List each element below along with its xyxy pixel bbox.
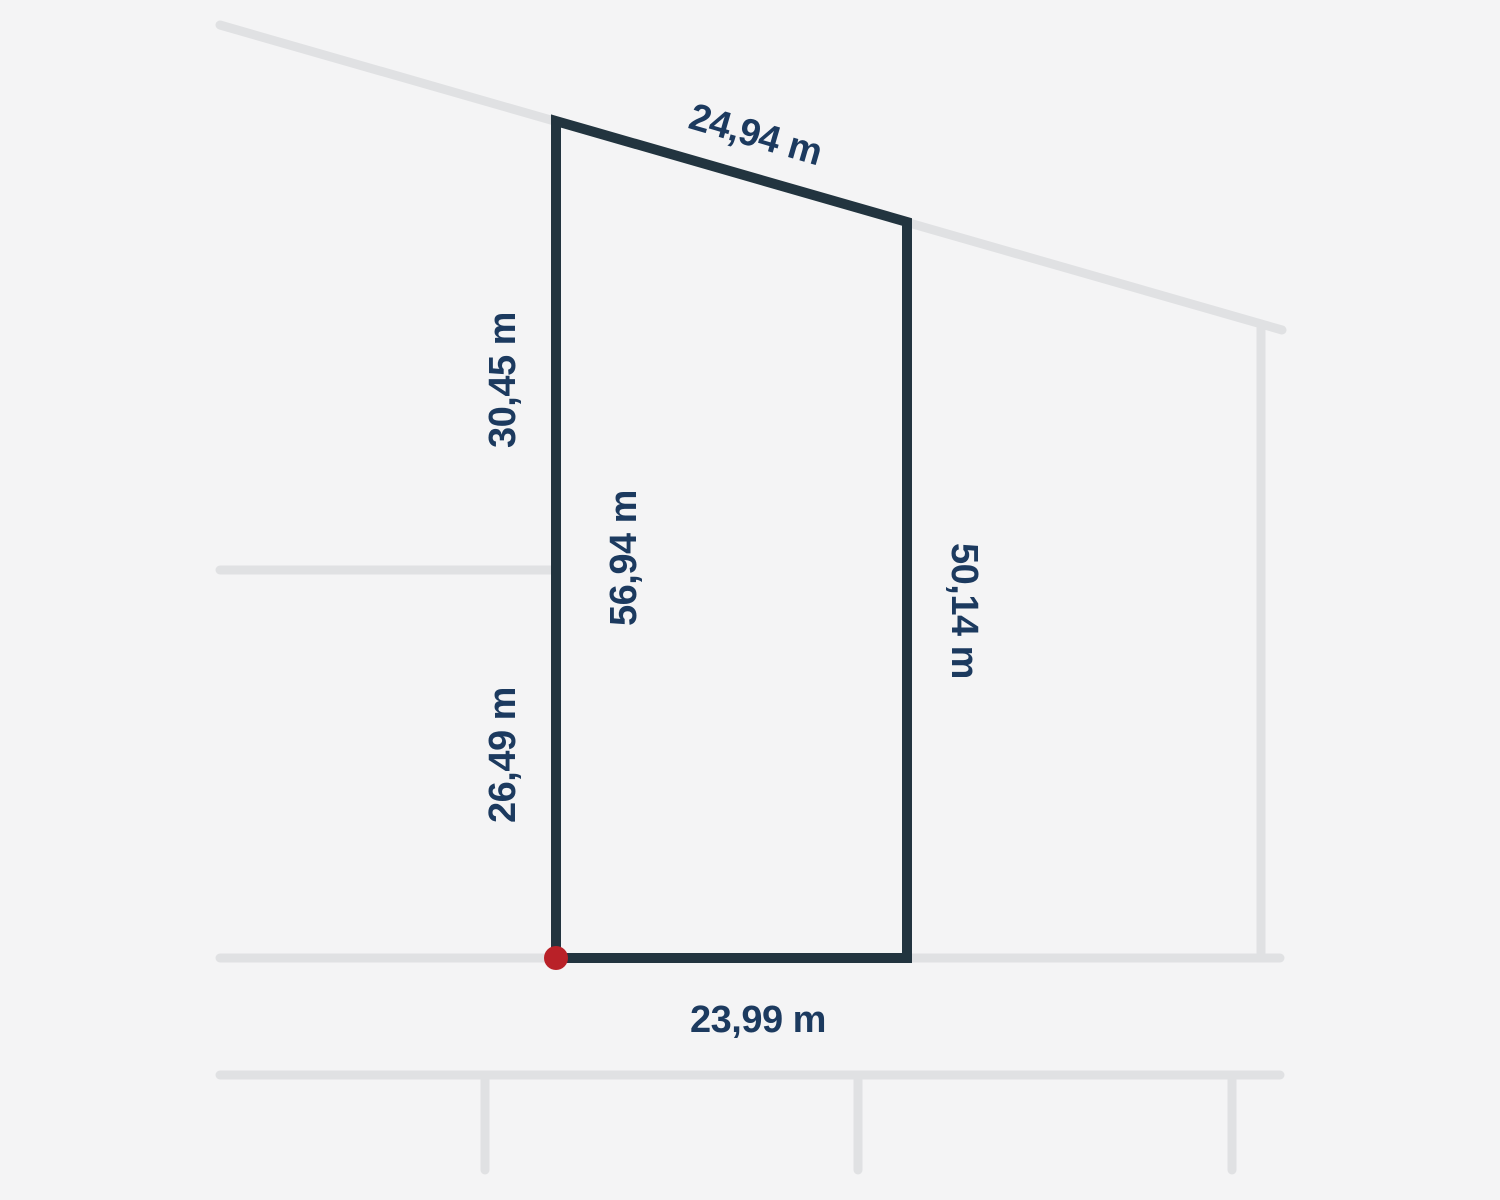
dimension-right: 50,14 m	[943, 543, 985, 679]
dimension-left-total: 56,94 m	[603, 490, 645, 626]
plot-diagram-canvas: 24,94 m 30,45 m 56,94 m 26,49 m 50,14 m …	[0, 0, 1500, 1200]
dimension-left-lower: 26,49 m	[482, 687, 524, 823]
corner-marker-dot	[544, 946, 568, 970]
dimension-left-upper: 30,45 m	[482, 312, 524, 448]
dimension-bottom: 23,99 m	[690, 999, 826, 1041]
plot-diagram: 24,94 m 30,45 m 56,94 m 26,49 m 50,14 m …	[0, 0, 1500, 1200]
